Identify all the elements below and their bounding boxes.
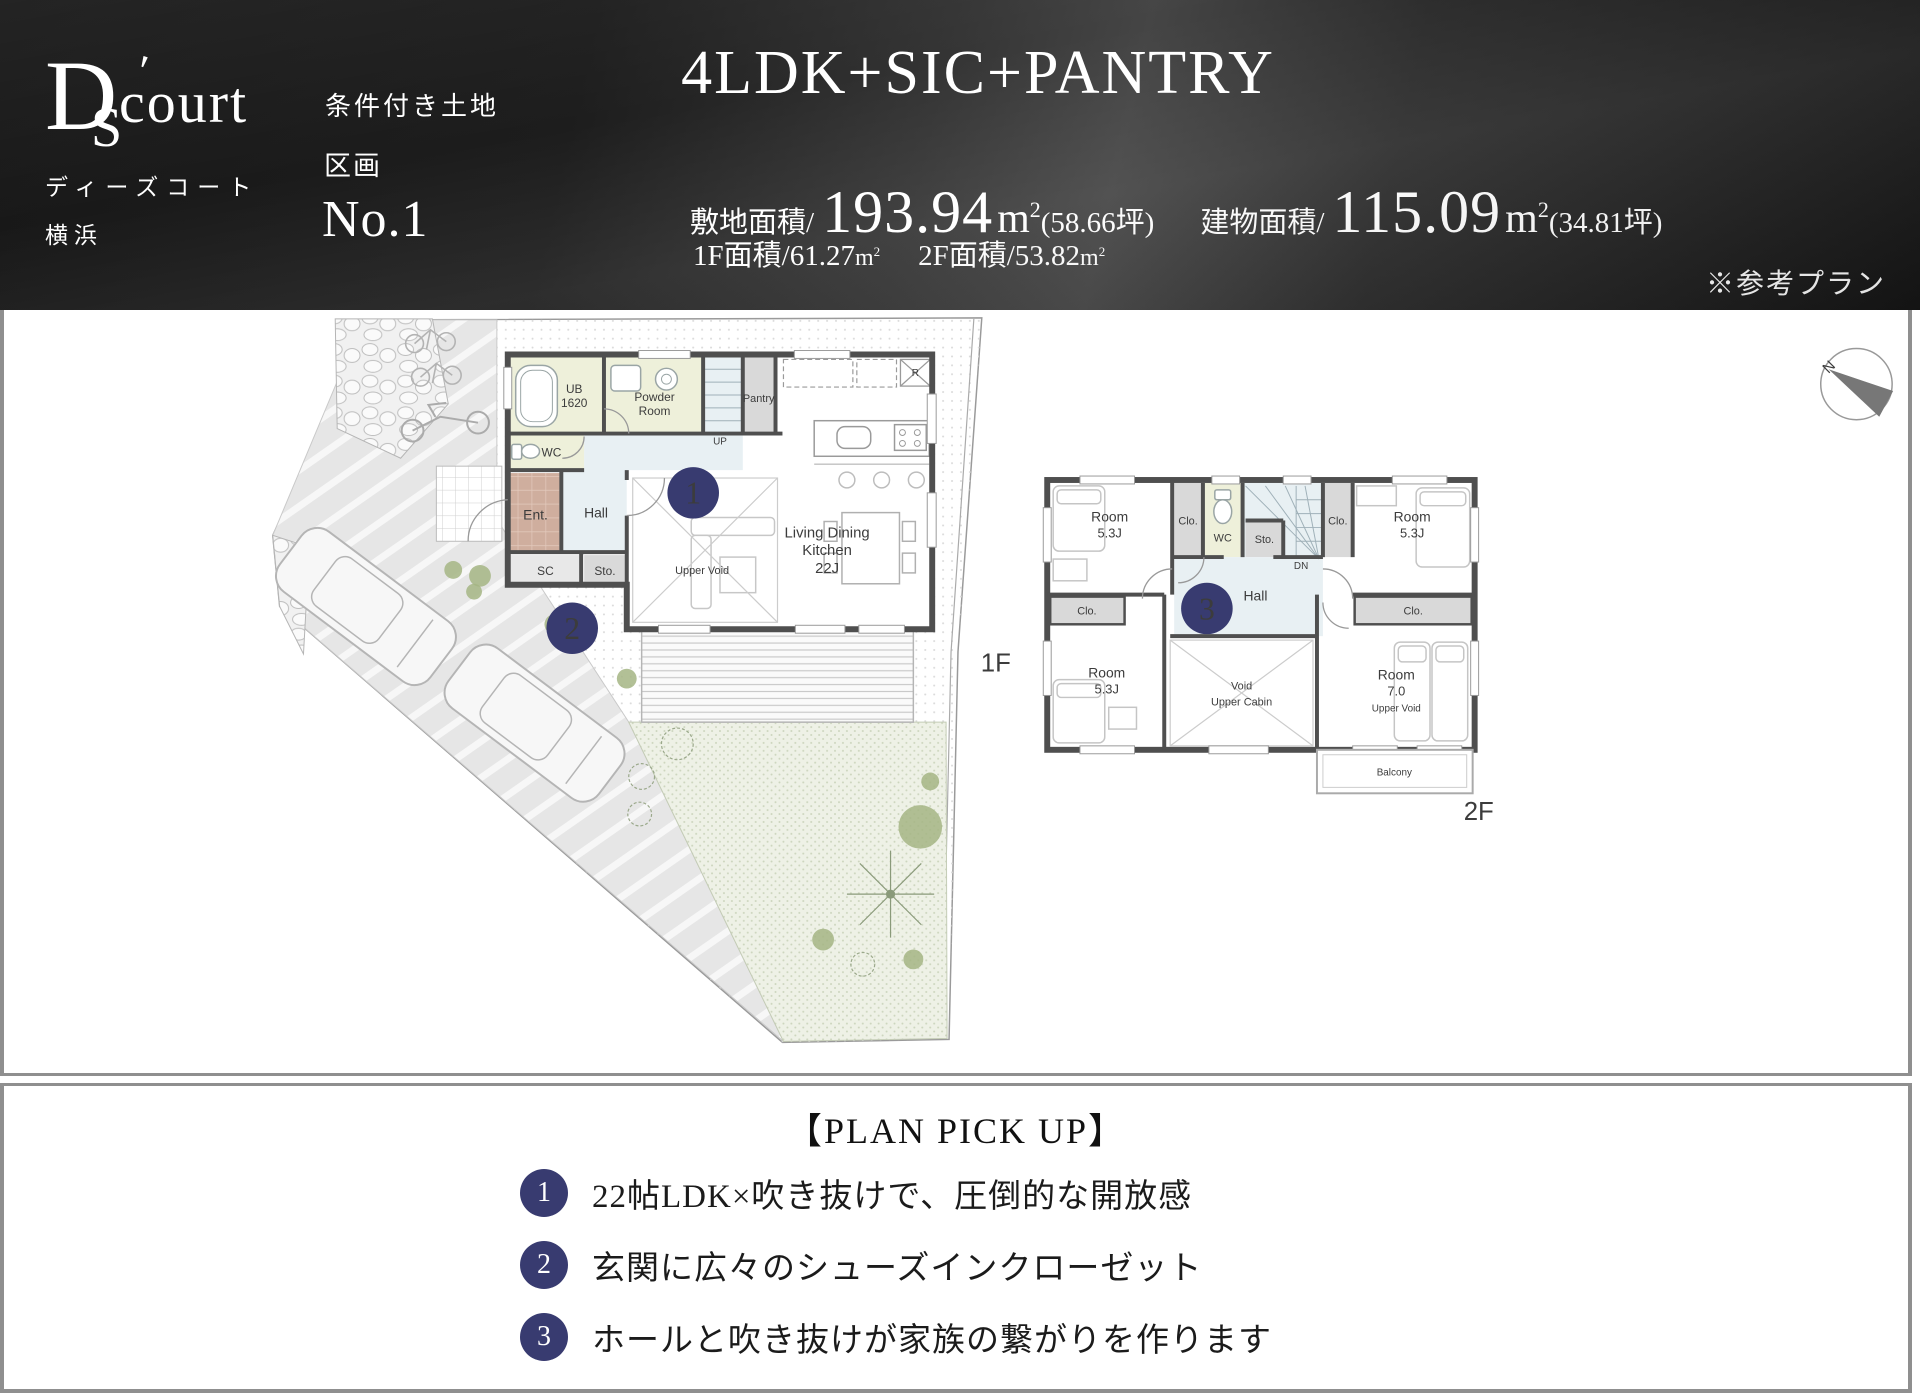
svg-text:3: 3: [1199, 591, 1215, 626]
floor1-area-value: 61.27: [790, 240, 855, 273]
room-label-ub-size: 1620: [561, 396, 588, 410]
pickup-item-2-badge: 2: [520, 1241, 568, 1289]
building-area-unit: m2: [1505, 195, 1549, 243]
toilet-1f: [512, 444, 540, 459]
floor-label-2f: 2F: [1464, 798, 1494, 826]
pickup-section: 【PLAN PICK UP】 1 22帖LDK×吹き抜けで、圧倒的な開放感 2 …: [0, 1083, 1912, 1393]
brand-logo: D S ' court: [45, 52, 345, 162]
room-label-ub: UB: [566, 382, 583, 396]
compass: N: [1820, 349, 1893, 420]
svg-text:1: 1: [685, 476, 701, 511]
building-area-value: 115.09: [1332, 178, 1501, 247]
room-label-powder: Powder: [634, 390, 674, 404]
wood-deck: [642, 629, 914, 722]
room-label-ent: Ent.: [523, 507, 548, 523]
pickup-item-1-text: 22帖LDK×吹き抜けで、圧倒的な開放感: [592, 1169, 1192, 1217]
pickup-item-1-badge: 1: [520, 1169, 568, 1217]
marker-3-badge: 3: [1181, 583, 1233, 634]
room-tr-label: Room: [1394, 509, 1431, 525]
kitchen-chairs: [839, 472, 924, 488]
floor-label-1f: 1F: [981, 650, 1011, 678]
floor-areas-row: 1F面積/61.27m2 2F面積/53.82m2: [693, 232, 1105, 274]
pickup-item-3-text: ホールと吹き抜けが家族の繋がりを作ります: [592, 1313, 1272, 1361]
void-label-2: Upper Cabin: [1211, 696, 1272, 708]
logo-word-court: court: [119, 74, 248, 132]
room-tr-size: 5.3J: [1400, 525, 1424, 540]
room-label-sto1f: Sto.: [594, 564, 615, 578]
room-label-wc1f: WC: [541, 445, 561, 459]
upper-void-label: Upper Void: [675, 565, 729, 577]
fridge-label: R: [912, 368, 919, 379]
logo-letter-s: S: [91, 100, 122, 156]
void-label-1: Void: [1231, 681, 1252, 693]
svg-text:2: 2: [564, 611, 580, 646]
marker-1-badge: 1: [667, 467, 719, 518]
wc2f-label: WC: [1214, 532, 1232, 544]
lot-number: No.1: [322, 190, 429, 249]
pickup-item: 3 ホールと吹き抜けが家族の繋がりを作ります: [520, 1313, 1272, 1361]
pickup-item-2-text: 玄関に広々のシューズインクローゼット: [592, 1241, 1202, 1289]
pickup-item: 1 22帖LDK×吹き抜けで、圧倒的な開放感: [520, 1169, 1192, 1217]
ldk-label-1: Living Dining: [785, 525, 870, 541]
sto2f-label: Sto.: [1255, 534, 1274, 546]
room-bl-size: 5.3J: [1095, 681, 1119, 696]
brand-name-kana: ディーズコート: [45, 168, 259, 202]
building-area-label: 建物面積/: [1200, 199, 1324, 241]
room-label-powder2: Room: [639, 404, 671, 418]
room-br-void: Upper Void: [1372, 703, 1421, 714]
stairs-dn-label: DN: [1294, 561, 1308, 572]
plan-title: 4LDK+SIC+PANTRY: [593, 38, 1363, 109]
site-plan-svg: UB 1620 Powder Room Pantry UP WC Ent. Ha…: [4, 310, 1908, 1073]
plan-drawing-area: UB 1620 Powder Room Pantry UP WC Ent. Ha…: [0, 310, 1912, 1076]
floor2-area-value: 53.82: [1015, 240, 1080, 273]
clo-mr-label: Clo.: [1403, 605, 1422, 617]
header-banner: D S ' court ディーズコート 横浜 条件付き土地 区画 No.1 4L…: [0, 0, 1920, 310]
clo-tr-label: Clo.: [1328, 515, 1347, 527]
flyer-page: D S ' court ディーズコート 横浜 条件付き土地 区画 No.1 4L…: [0, 0, 1920, 1393]
room-tl-size: 5.3J: [1098, 525, 1122, 540]
room-bl-label: Room: [1088, 665, 1125, 681]
bath-tub: [516, 365, 558, 426]
brand-city: 横浜: [45, 216, 103, 250]
room-label-sc: SC: [537, 564, 554, 578]
floor-plan-2f: Room 5.3J Clo. WC Sto. DN Clo. Room 5.3J…: [1043, 476, 1494, 826]
room-br-label: Room: [1378, 667, 1415, 683]
lot-label: 区画: [324, 144, 382, 183]
floor1-area-unit: m2: [855, 244, 880, 272]
stairs-up-label: UP: [713, 436, 727, 447]
land-condition-label: 条件付き土地: [325, 86, 499, 123]
pickup-title: 【PLAN PICK UP】: [4, 1102, 1908, 1154]
floor2-area-label: 2F面積/: [918, 232, 1015, 274]
pickup-item: 2 玄関に広々のシューズインクローゼット: [520, 1241, 1202, 1289]
ldk-label-3: 22J: [815, 561, 839, 577]
clo-tl-label: Clo.: [1178, 515, 1197, 527]
hall2f-label: Hall: [1244, 588, 1268, 604]
room-label-pantry: Pantry: [743, 393, 775, 405]
ldk-label-2: Kitchen: [802, 543, 852, 559]
dandelion-tree: [847, 851, 934, 938]
pickup-item-3-badge: 3: [520, 1313, 568, 1361]
floor1-area-label: 1F面積/: [693, 232, 790, 274]
marker-2-badge: 2: [546, 603, 598, 654]
reference-plan-note: ※参考プラン: [1706, 262, 1886, 302]
floor2-area-unit: m2: [1080, 244, 1105, 272]
building-area-tsubo: (34.81坪): [1549, 199, 1663, 241]
clo-ml-label: Clo.: [1077, 605, 1096, 617]
room-br-size: 7.0: [1387, 683, 1405, 698]
room-label-hall1f: Hall: [584, 505, 608, 521]
room-tl-label: Room: [1091, 509, 1128, 525]
floor-plan-1f: UB 1620 Powder Room Pantry UP WC Ent. Ha…: [468, 351, 1011, 678]
balcony-label: Balcony: [1377, 768, 1412, 779]
toilet-2f: [1214, 490, 1232, 524]
